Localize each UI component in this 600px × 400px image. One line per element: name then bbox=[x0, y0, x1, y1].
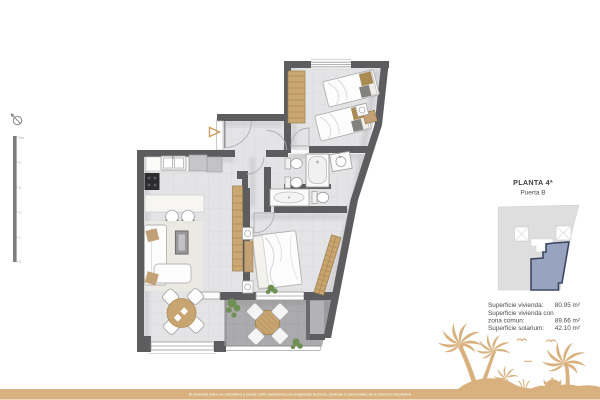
svg-text:4: 4 bbox=[19, 161, 21, 165]
svg-text:PLANTA 4ª: PLANTA 4ª bbox=[513, 178, 553, 187]
svg-text:0: 0 bbox=[19, 260, 21, 264]
svg-text:Superficie vivienda con: Superficie vivienda con bbox=[488, 310, 554, 317]
svg-text:5m: 5m bbox=[19, 136, 24, 140]
svg-text:42.10 m²: 42.10 m² bbox=[555, 325, 580, 332]
svg-text:80.95 m²: 80.95 m² bbox=[555, 302, 580, 309]
svg-text:El presente plano es orientati: El presente plano es orientativo y puede… bbox=[189, 393, 412, 397]
svg-text:1: 1 bbox=[19, 236, 21, 240]
svg-text:Superficie vivienda:: Superficie vivienda: bbox=[488, 302, 544, 309]
svg-text:3: 3 bbox=[19, 186, 21, 190]
svg-text:Superficie solarium:: Superficie solarium: bbox=[488, 325, 544, 332]
svg-text:89.66 m²: 89.66 m² bbox=[555, 318, 580, 325]
svg-text:zona comun:: zona comun: bbox=[488, 318, 525, 325]
svg-text:2: 2 bbox=[19, 211, 21, 215]
svg-text:Puerta B: Puerta B bbox=[520, 190, 545, 197]
